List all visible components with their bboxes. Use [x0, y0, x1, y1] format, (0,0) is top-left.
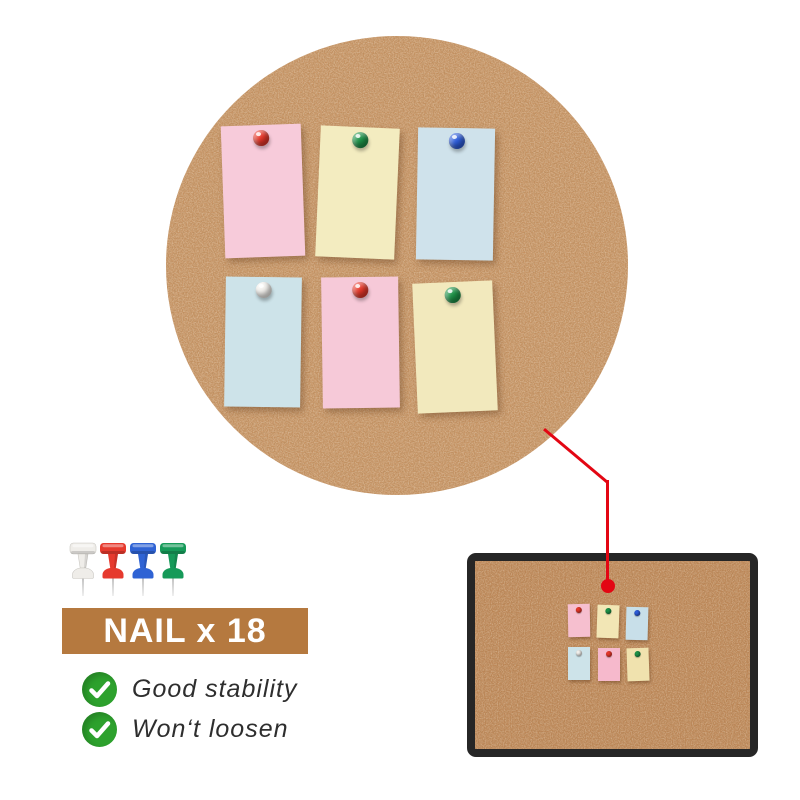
pushpin-green-icon [158, 542, 188, 600]
check-icon [82, 672, 117, 707]
pushpin-red-icon [253, 130, 270, 147]
sticky-note-pink-2 [321, 276, 400, 408]
mini-note-pink-2 [598, 648, 620, 681]
product-image: NAIL x 18 Good stability Won‘t loosen [0, 0, 800, 800]
sticky-note-pink-1 [221, 124, 306, 259]
pushpin-white-icon [576, 650, 582, 656]
pushpin-blue-icon [448, 133, 464, 149]
feature-label: Won‘t loosen [132, 715, 289, 744]
sticky-note-yellow-2 [412, 280, 498, 413]
round-cork-board [166, 36, 628, 495]
pushpin-green-icon [351, 132, 368, 149]
pushpin-red-icon [98, 542, 128, 600]
mini-note-pink-1 [568, 604, 591, 637]
sticky-note-blue-1 [416, 127, 495, 260]
check-icon [82, 712, 117, 747]
mini-note-yellow-2 [626, 648, 649, 682]
sticky-note-blue-2 [224, 276, 302, 407]
pushpin-blue-icon [634, 610, 640, 616]
pushpin-red-icon [576, 607, 582, 613]
pushpin-green-icon [635, 651, 641, 657]
nail-count-banner: NAIL x 18 [62, 608, 308, 654]
cork-texture [166, 36, 628, 495]
pushpin-green-icon [444, 287, 461, 304]
nail-count-label: NAIL x 18 [103, 612, 266, 651]
mini-note-blue-1 [626, 607, 649, 641]
mini-note-blue-2 [568, 647, 590, 680]
pushpin-blue-icon [128, 542, 158, 600]
feature-label: Good stability [132, 675, 297, 704]
pushpin-white-icon [68, 542, 98, 600]
pushpin-red-icon [606, 651, 612, 657]
pushpin-green-icon [605, 608, 611, 614]
pushpin-red-icon [352, 282, 368, 298]
callout-dot [601, 579, 615, 593]
callout-line-vertical [606, 480, 609, 587]
sticky-note-yellow-1 [315, 125, 400, 259]
pushpin-white-icon [256, 282, 272, 298]
pushpin-samples [68, 542, 188, 600]
mini-note-yellow-1 [596, 605, 619, 639]
feature-wont-loosen: Won‘t loosen [82, 712, 289, 747]
feature-good-stability: Good stability [82, 672, 297, 707]
